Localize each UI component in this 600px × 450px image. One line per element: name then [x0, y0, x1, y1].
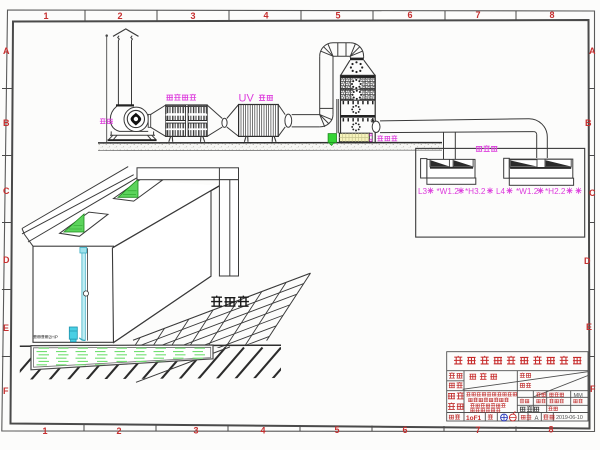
svg-text:B: B — [3, 118, 10, 128]
svg-text:2HP: 2HP — [49, 335, 58, 341]
svg-text:2: 2 — [117, 11, 122, 21]
svg-text:6: 6 — [402, 425, 407, 435]
svg-text:E: E — [586, 322, 592, 332]
svg-text:4: 4 — [260, 426, 265, 436]
svg-text:4: 4 — [263, 11, 268, 21]
svg-text:*W1.2: *W1.2 — [437, 187, 460, 196]
svg-text:L4: L4 — [496, 187, 506, 196]
svg-text:UV: UV — [239, 93, 255, 105]
svg-text:1: 1 — [43, 11, 48, 21]
svg-text:8: 8 — [549, 10, 554, 20]
svg-text:F: F — [590, 384, 596, 394]
svg-text:1: 1 — [42, 426, 47, 436]
svg-text:2: 2 — [116, 426, 121, 436]
svg-text:E: E — [3, 323, 9, 333]
svg-text:5: 5 — [335, 11, 340, 21]
svg-text:*W1.2: *W1.2 — [516, 187, 539, 196]
svg-text:MM: MM — [574, 393, 584, 399]
svg-text:7: 7 — [475, 10, 480, 20]
svg-text:2019-06-10: 2019-06-10 — [556, 415, 583, 421]
svg-text:*H3.2: *H3.2 — [465, 187, 486, 196]
svg-text:A: A — [589, 46, 596, 56]
svg-text:1oF1: 1oF1 — [466, 415, 482, 422]
svg-text:A: A — [535, 416, 539, 422]
svg-text:6: 6 — [407, 10, 412, 20]
svg-text:3: 3 — [190, 11, 195, 21]
svg-text:B: B — [585, 118, 592, 128]
svg-text:5: 5 — [334, 425, 339, 435]
svg-text:D: D — [584, 256, 591, 266]
svg-text:C: C — [589, 188, 596, 198]
svg-text:L3: L3 — [418, 187, 428, 196]
svg-text:A: A — [3, 46, 10, 56]
svg-text:C: C — [3, 186, 10, 196]
svg-text:F: F — [3, 386, 9, 396]
svg-text:*H2.2: *H2.2 — [545, 187, 566, 196]
svg-text:8: 8 — [548, 425, 553, 435]
svg-text:3: 3 — [193, 426, 198, 436]
svg-text:7: 7 — [475, 425, 480, 435]
svg-text:D: D — [3, 255, 10, 265]
